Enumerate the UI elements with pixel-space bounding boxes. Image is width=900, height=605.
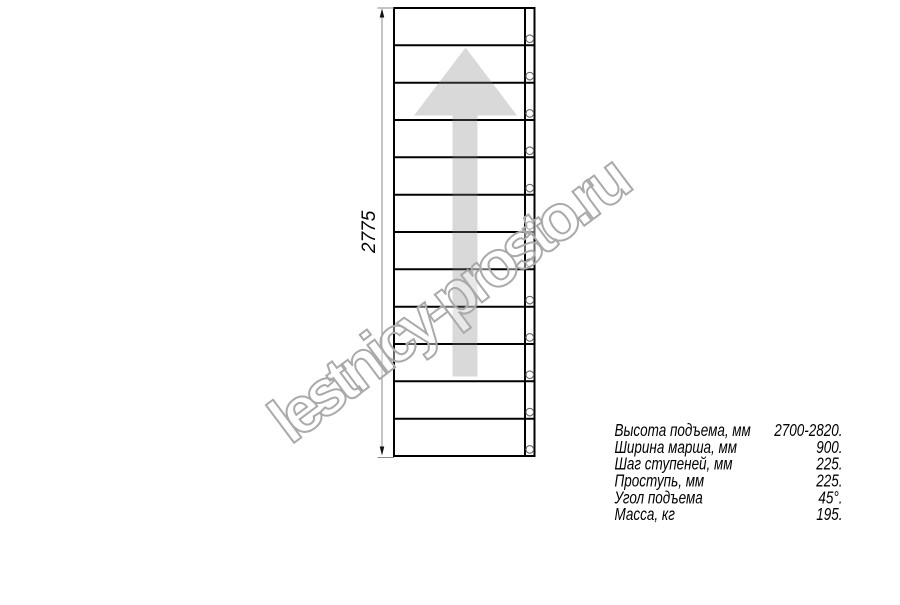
svg-text:2775: 2775 bbox=[359, 210, 380, 254]
svg-text:Масса, кг: Масса, кг bbox=[615, 505, 676, 524]
svg-text:lestnicy-prosto.ru: lestnicy-prosto.ru bbox=[255, 142, 641, 457]
svg-text:195.: 195. bbox=[816, 505, 842, 524]
